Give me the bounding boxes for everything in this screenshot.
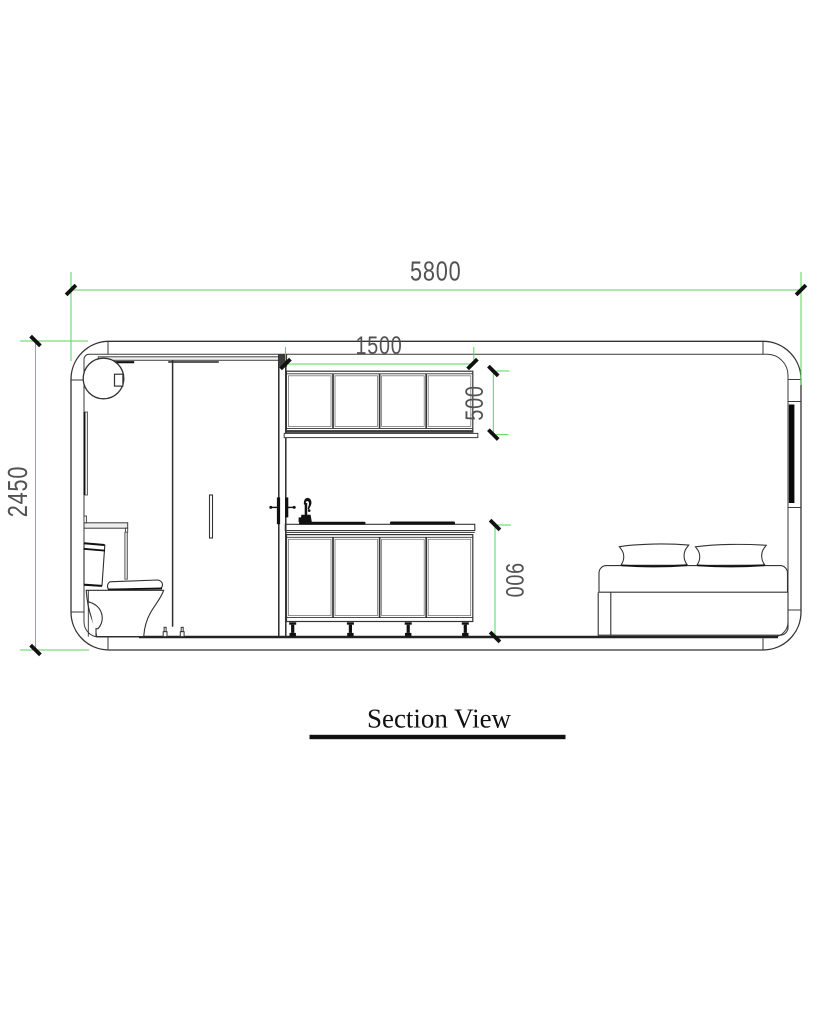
svg-text:1500: 1500 xyxy=(355,332,402,360)
svg-text:2450: 2450 xyxy=(4,466,34,517)
svg-text:5800: 5800 xyxy=(410,257,461,287)
svg-text:500: 500 xyxy=(461,385,489,420)
svg-text:900: 900 xyxy=(500,563,528,598)
svg-text:Section View: Section View xyxy=(367,704,512,734)
